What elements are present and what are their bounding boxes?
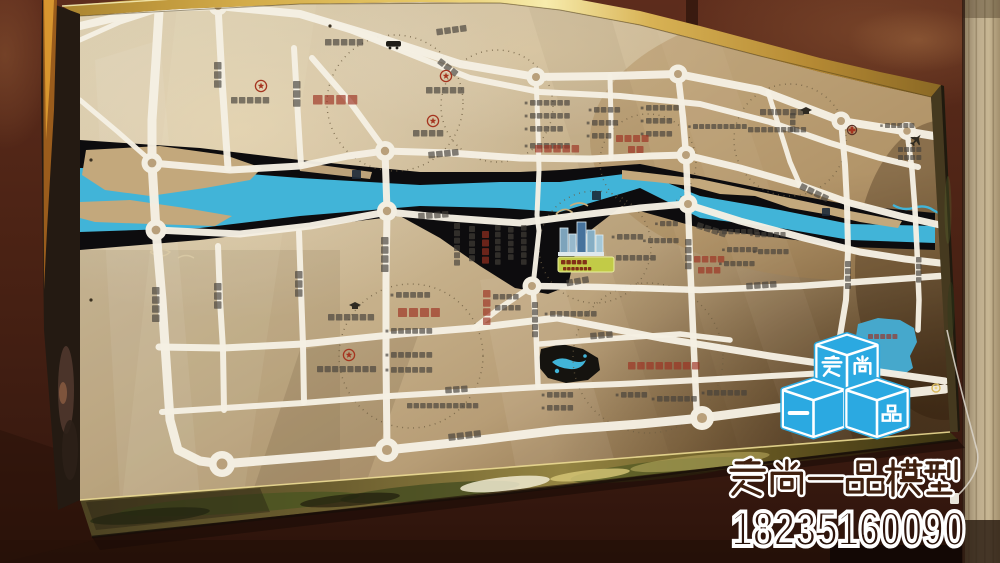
svg-text:18235160090: 18235160090 <box>731 500 965 557</box>
